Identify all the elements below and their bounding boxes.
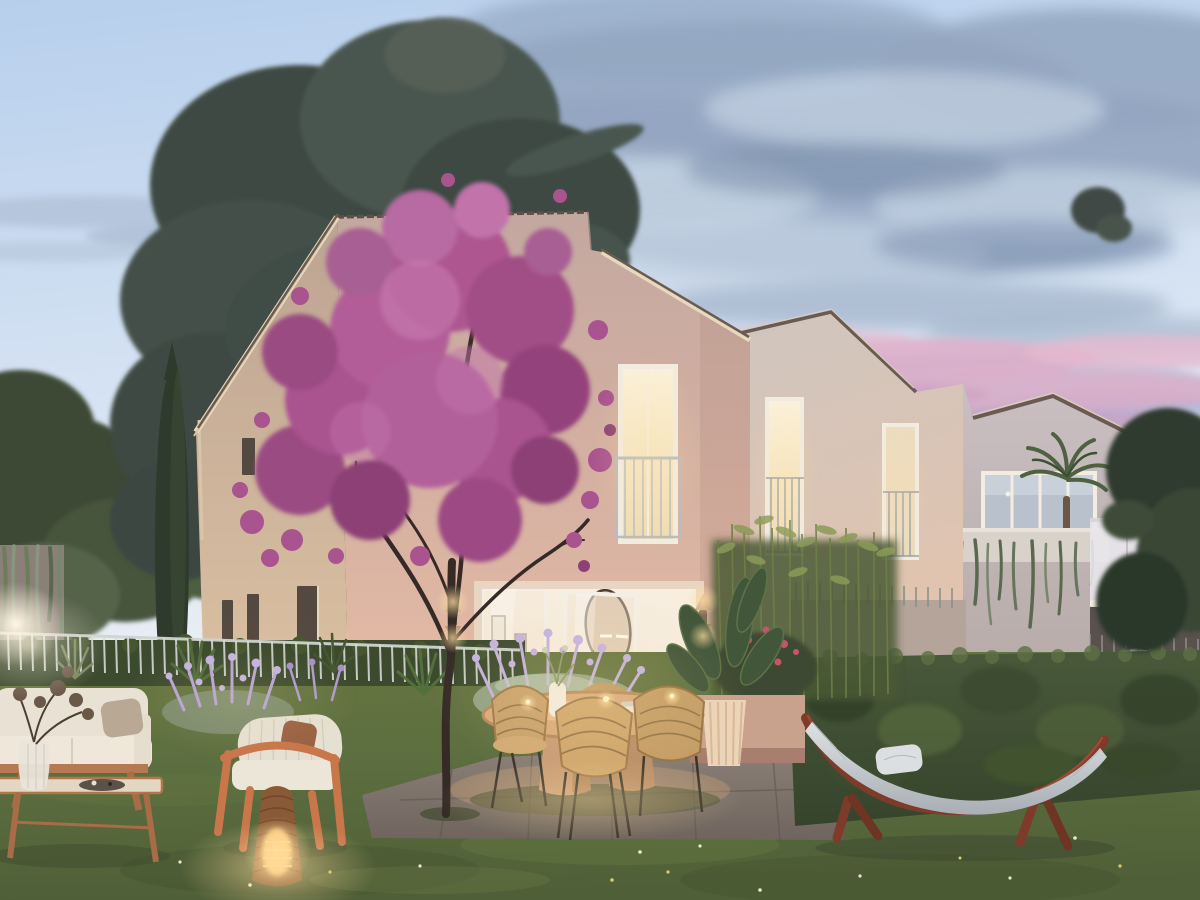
property-rendering: Twilight architectural rendering of a mo… bbox=[0, 0, 1200, 900]
right-dark-tree bbox=[1096, 408, 1200, 652]
tray bbox=[79, 779, 125, 791]
rendering-canvas: Twilight architectural rendering of a mo… bbox=[0, 0, 1200, 900]
hammock-pillow bbox=[875, 743, 924, 775]
